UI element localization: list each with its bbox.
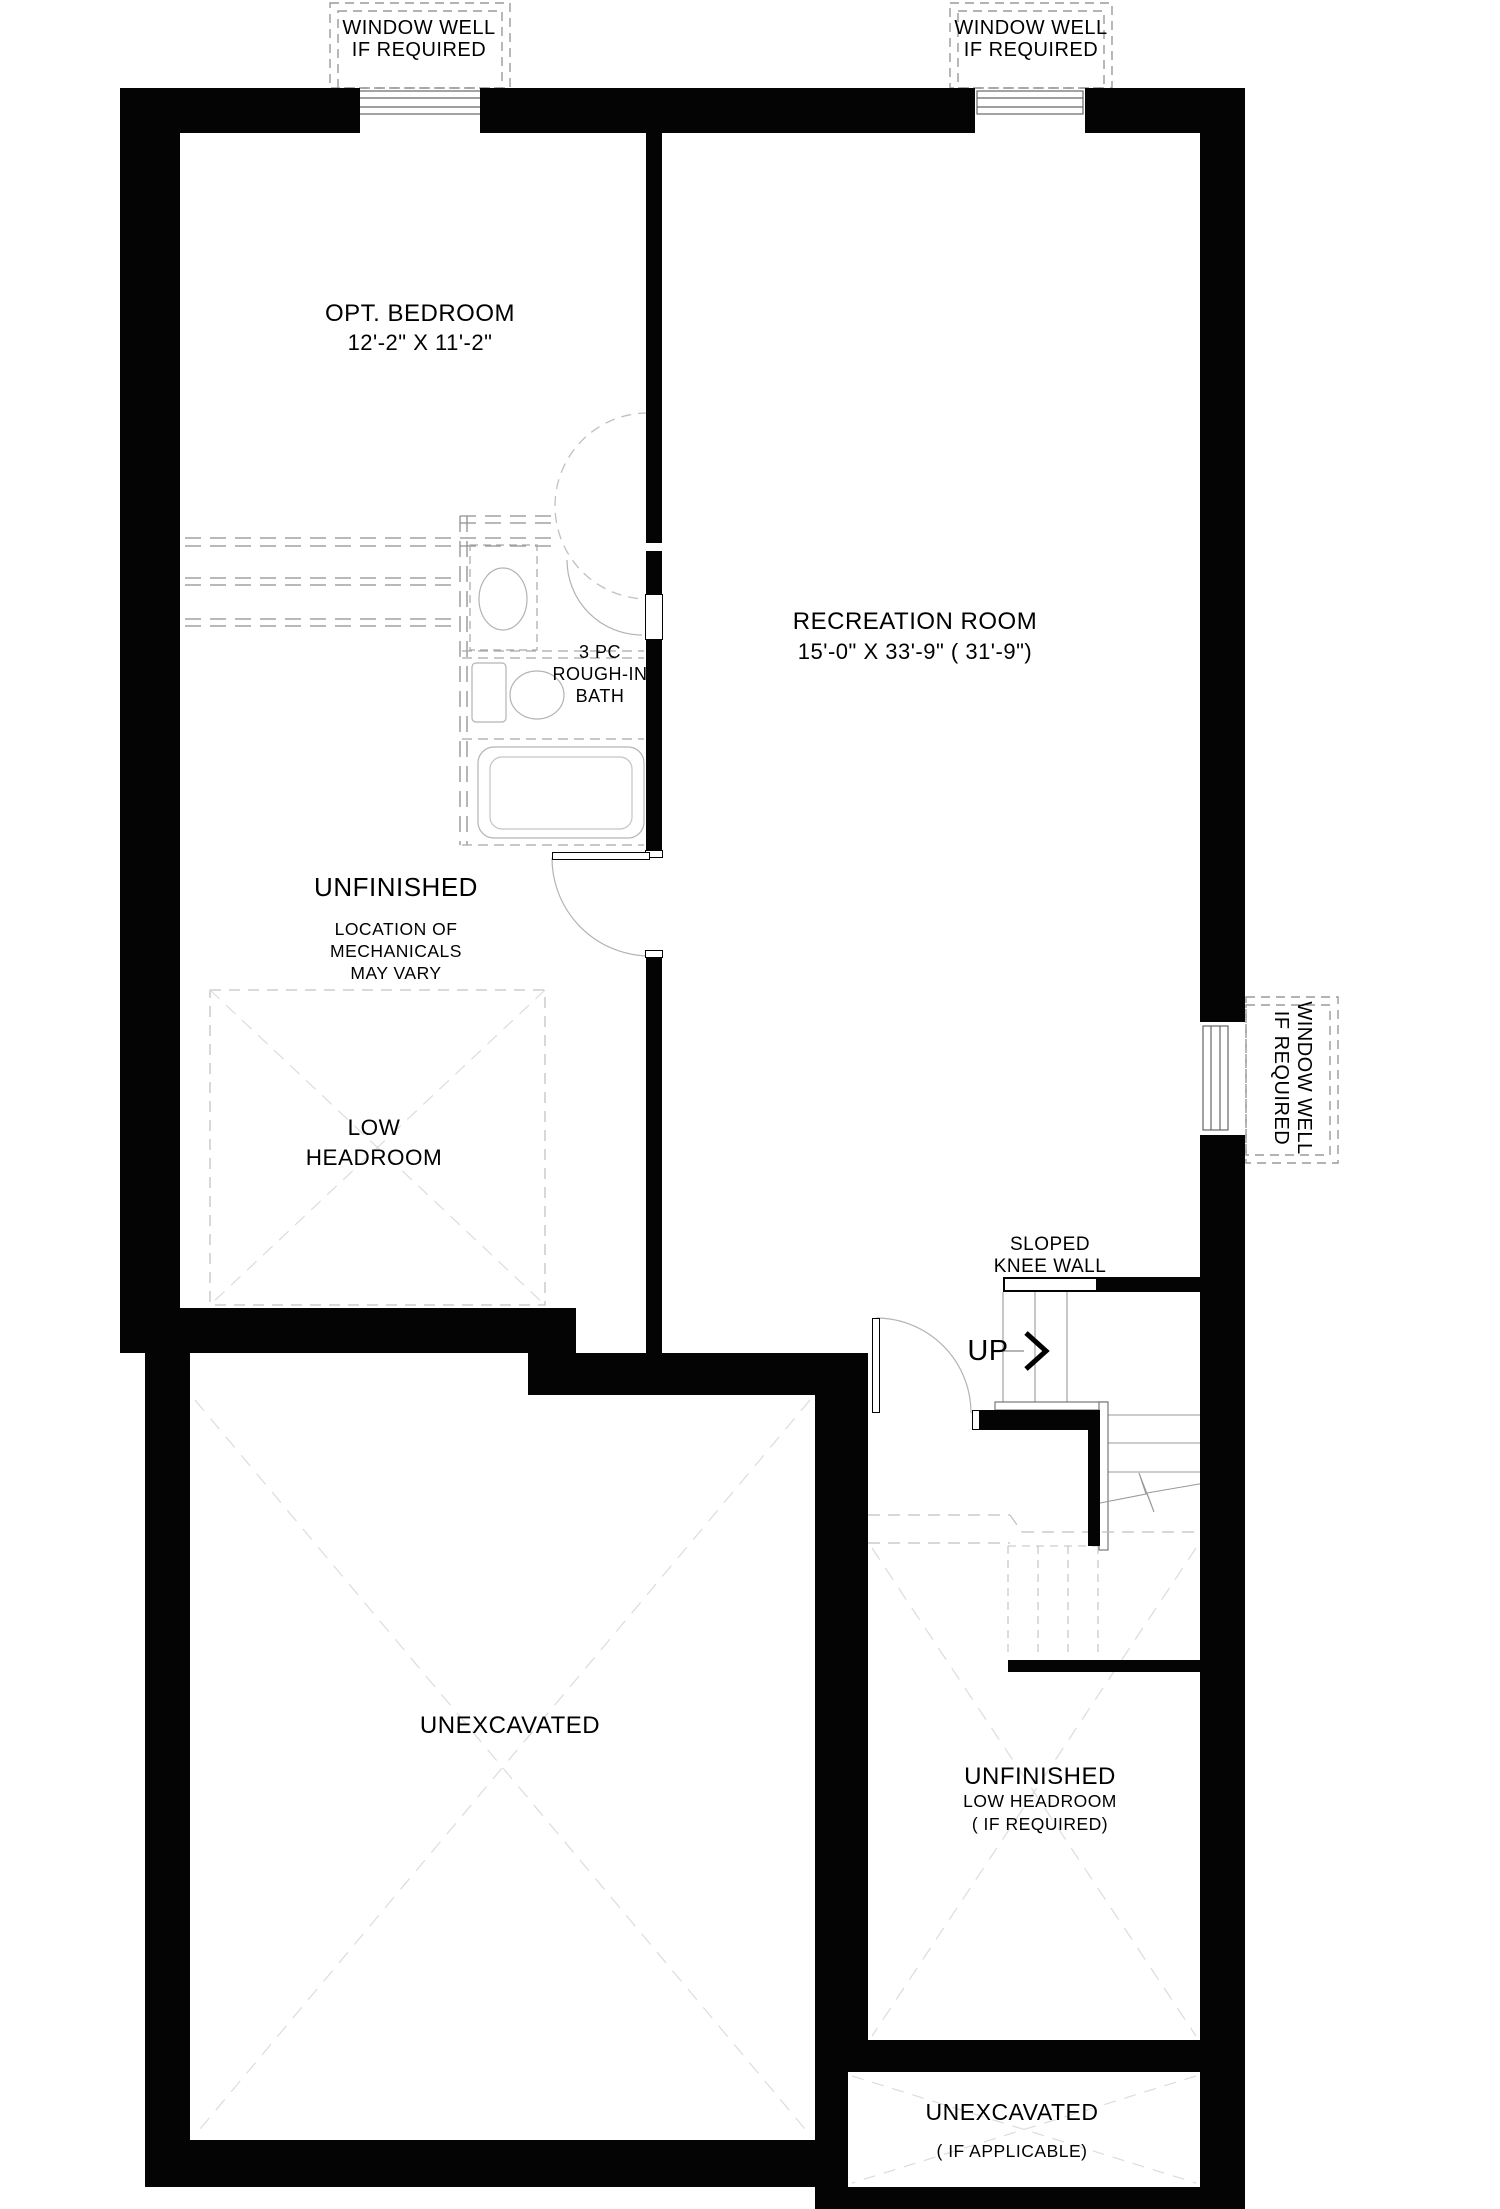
wall-band-upper <box>120 1308 576 1353</box>
future-wall-dashed-lines <box>185 516 560 845</box>
recreation-room-label: RECREATION ROOM 15'-0" X 33'-9" ( 31'-9"… <box>793 607 1037 667</box>
wall-stair-horizontal <box>980 1410 1100 1430</box>
mechanicals-note: LOCATION OF MECHANICALS MAY VARY <box>330 918 462 984</box>
wall-unexcavated-bottom <box>145 2140 815 2187</box>
basement-floor-plan: WINDOW WELL IF REQUIRED WINDOW WELL IF R… <box>0 0 1500 2209</box>
window-well-top-right-label: WINDOW WELL IF REQUIRED <box>954 17 1107 61</box>
unexcavated-main-cross <box>195 1400 810 2135</box>
wall-interior-b <box>646 551 662 594</box>
headroom-dashed-lines <box>868 1515 1205 1543</box>
rec-door-leaf <box>552 852 650 860</box>
up-label: UP <box>967 1335 1008 1367</box>
stair-treads-upper <box>1003 1292 1067 1405</box>
sloped-knee-wall-label: SLOPED KNEE WALL <box>994 1234 1107 1278</box>
door-roughin-opening <box>645 594 663 640</box>
wall-interior-a <box>646 133 662 543</box>
wall-unexcavated-right <box>815 1353 868 2072</box>
stair-door-arc <box>876 1318 971 1413</box>
window-well-top-left-label: WINDOW WELL IF REQUIRED <box>342 17 495 61</box>
wall-interior-c <box>646 640 662 850</box>
wall-band-lower <box>528 1353 828 1395</box>
stair-door-jamb <box>972 1410 980 1430</box>
rec-door-arc <box>552 858 650 956</box>
wall-left <box>120 88 180 1310</box>
opt-bedroom-label: OPT. BEDROOM 12'-2" X 11'-2" <box>325 299 515 357</box>
bedroom-door-arc <box>555 413 648 599</box>
unfinished-mechanicals-label: UNFINISHED <box>314 873 478 901</box>
wall-unexcavated-left <box>145 1353 190 2187</box>
wall-lowerbox-bottom <box>815 2187 1245 2209</box>
sloped-knee-wall <box>1003 1277 1098 1292</box>
low-headroom-label: LOW HEADROOM <box>306 1113 443 1173</box>
wall-top-middle-segment <box>480 88 975 133</box>
toilet-tank <box>472 663 506 722</box>
stair-door-leaf <box>872 1318 880 1413</box>
stair-treads-lower <box>1108 1415 1200 1472</box>
wall-right-upper <box>1200 88 1245 1022</box>
unfinished-low-headroom-label: UNFINISHED LOW HEADROOM ( IF REQUIRED) <box>963 1763 1117 1836</box>
bathtub-inner <box>490 757 632 829</box>
window-well-right-label: WINDOW WELL IF REQUIRED <box>1269 1001 1315 1154</box>
up-arrow-icon <box>1004 1333 1046 1369</box>
wall-lowerbox-top <box>815 2040 1245 2072</box>
understair-dashed-treads <box>1008 1546 1098 1655</box>
wall-stair-vertical <box>1088 1410 1100 1546</box>
window-frame-right <box>1203 1026 1228 1130</box>
unexcavated-main-label: UNEXCAVATED <box>420 1712 600 1740</box>
unexcavated-lower-label: UNEXCAVATED ( IF APPLICABLE) <box>926 2099 1099 2165</box>
stair-break-line <box>1100 1473 1205 1512</box>
wall-understair <box>1008 1660 1200 1672</box>
window-frame-top-right <box>977 91 1083 114</box>
door-jamb-bottom <box>645 950 663 958</box>
sink <box>479 568 527 630</box>
wall-knee-right-segment <box>1098 1277 1200 1292</box>
bathtub-outer <box>478 747 644 838</box>
bath-label: 3 PC ROUGH-IN BATH <box>553 641 648 707</box>
wall-interior-d <box>646 958 662 1353</box>
window-frame-top-left <box>359 91 481 114</box>
